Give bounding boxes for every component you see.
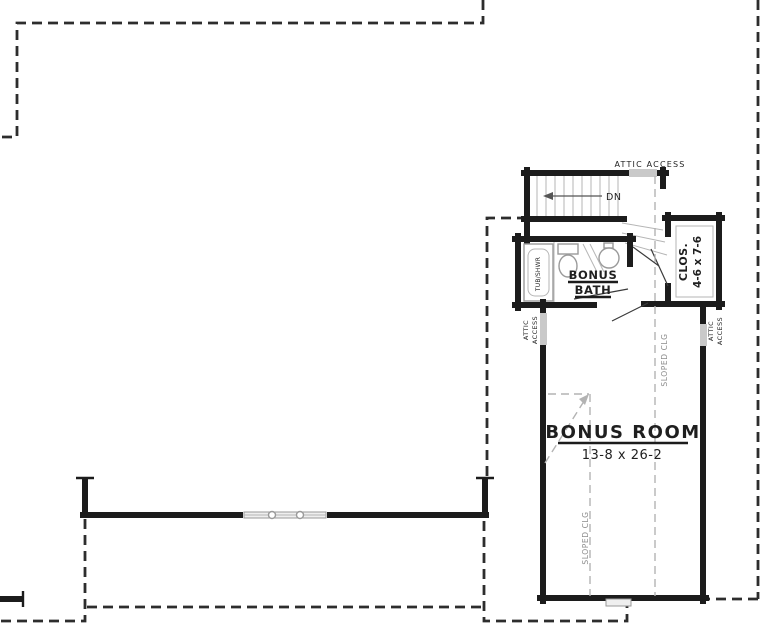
window-mullion-circle [297, 512, 304, 519]
attic-access-panel-right [700, 324, 707, 346]
roof-outline-dashed [0, 0, 758, 621]
attic-access-side-labels: ATTIC ACCESS ATTIC ACCESS [522, 316, 724, 345]
bonus-room-door-leaf [612, 303, 648, 321]
closet-name-label: CLOS. [677, 243, 690, 281]
room-dimensions-label: 13-8 x 26-2 [582, 448, 662, 463]
floor-plan-drawing: DN ATTIC ACCESS TUB/SHWR BONUS BATH [0, 0, 764, 627]
left-exterior-walls [0, 478, 494, 607]
roof-outline-lower-left [0, 519, 85, 621]
floor-plan-page: DN ATTIC ACCESS TUB/SHWR BONUS BATH [0, 0, 764, 627]
bath-name-line1: BONUS [569, 268, 618, 282]
attic-access-panel-top [629, 169, 657, 177]
attic-access-right-label-line1: ATTIC [707, 321, 715, 341]
roof-outline-top-left [0, 0, 483, 137]
attic-access-left-label-line1: ATTIC [522, 320, 530, 340]
closet-dimensions-label: 4-6 x 7-6 [692, 236, 704, 288]
attic-access-panel-left [540, 313, 547, 345]
arrow-head-icon [543, 192, 553, 200]
window-long-wall [243, 509, 327, 521]
bath-name-line2: BATH [575, 283, 612, 297]
bonus-bath: TUB/SHWR BONUS BATH [515, 236, 633, 308]
stairwell: DN [524, 169, 667, 255]
room-name-label: BONUS ROOM [545, 422, 700, 443]
tub-shower-label: TUB/SHWR [535, 257, 542, 292]
attic-access-left-label-line2: ACCESS [531, 316, 539, 344]
attic-access-right-label-line2: ACCESS [716, 317, 724, 345]
sloped-ceiling-upper-label: SLOPED CLG [660, 333, 669, 386]
attic-access-top-label: ATTIC ACCESS [614, 160, 685, 169]
window-mullion-circle [269, 512, 276, 519]
sloped-ceiling-lower-label: SLOPED CLG [581, 511, 590, 564]
closet: CLOS. 4-6 x 7-6 [633, 215, 722, 307]
sink-fixture [599, 243, 619, 268]
window-bottom-wall [606, 599, 631, 606]
stairs-dn-label: DN [606, 192, 621, 203]
sloped-ceiling-arrow-head [579, 394, 589, 405]
